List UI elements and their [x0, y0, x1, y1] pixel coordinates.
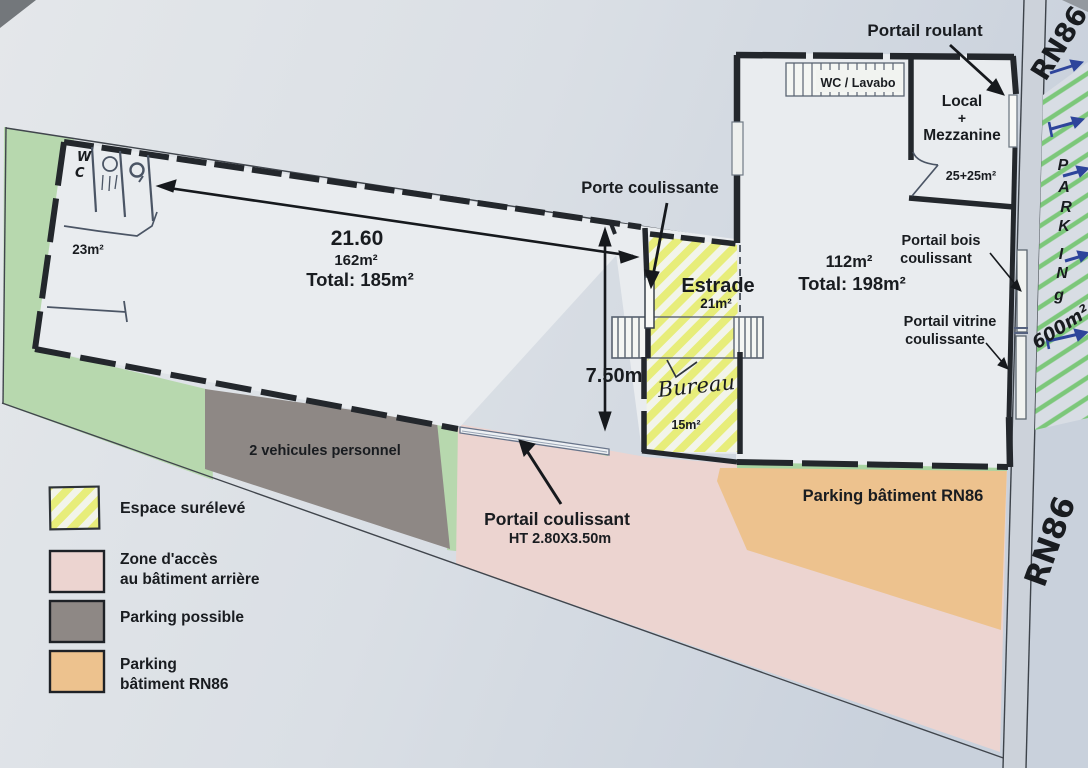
plus-label: +: [958, 110, 966, 126]
estrade-label: Estrade: [681, 275, 754, 297]
parking-letter-r: R: [1060, 199, 1072, 216]
portail-ht-label: HT 2.80X3.50m: [509, 531, 611, 547]
legend-swatch-gray: [50, 601, 104, 642]
parking-letter-k: K: [1058, 218, 1071, 235]
legend-swatch-orange: [50, 651, 104, 692]
legend-label-parking-possible: Parking possible: [120, 609, 244, 626]
portail-vitrine-panel: [1016, 336, 1026, 419]
area-162-label: 162m²: [334, 252, 377, 269]
portail-vitrine-label-1: Portail vitrine: [904, 314, 997, 330]
legend-swatch-pink: [50, 551, 104, 592]
west-wall-opening: [732, 122, 743, 175]
total-185-label: Total: 185m²: [306, 269, 414, 290]
area-112-label: 112m²: [826, 253, 873, 271]
parking-letter-g: g: [1053, 287, 1064, 304]
vehicules-label: 2 vehicules personnel: [249, 443, 401, 459]
wall-right-building-east-lower: [1009, 417, 1010, 467]
portail-coulissant-label: Portail coulissant: [484, 509, 630, 529]
portail-bois-panel: [1017, 250, 1027, 332]
building-right-floor: [736, 53, 1014, 468]
local-label: Local: [942, 93, 982, 110]
area-23-label: 23m²: [72, 242, 104, 257]
wall-right-building-north: [736, 55, 1014, 57]
portail-roulant-panel: [1009, 95, 1017, 147]
parking-letter-i: I: [1059, 246, 1064, 263]
area-15-label: 15m²: [671, 418, 700, 432]
area-21-label: 21m²: [700, 296, 732, 311]
dim-7-50-label: 7.50m: [586, 365, 643, 387]
parking-letter-n: N: [1056, 265, 1068, 282]
floor-plan-photo: 21.60 162m² Total: 185m² 23m² Porte coul…: [0, 0, 1088, 768]
portail-bois-label-1: Portail bois: [902, 233, 981, 249]
portail-vitrine-label-2: coulissante: [905, 332, 985, 348]
porte-coulissante-label: Porte coulissante: [581, 179, 719, 197]
area-25-25-label: 25+25m²: [946, 169, 996, 183]
parking-letter-a: A: [1057, 179, 1070, 196]
dim-21-60-label: 21.60: [331, 227, 384, 250]
legend-label-espace-sureleve: Espace surélevé: [120, 500, 246, 517]
legend-swatch-yellow-hatch: [50, 487, 100, 530]
parking-rn86-label: Parking bâtiment RN86: [803, 487, 984, 505]
portail-roulant-label: Portail roulant: [867, 21, 983, 40]
mezzanine-label: Mezzanine: [923, 127, 1001, 144]
legend-label-zone-acces-1: Zone d'accès: [120, 551, 218, 568]
total-198-label: Total: 198m²: [798, 273, 906, 294]
wall-right-building-east-upper: [1013, 56, 1016, 94]
legend-label-zone-acces-2: au bâtiment arrière: [120, 571, 260, 588]
legend-label-parking-rn86-1: Parking: [120, 656, 177, 673]
wc-letter-c: C: [75, 166, 85, 181]
wc-letter-w: W: [77, 150, 92, 165]
portail-bois-label-2: coulissant: [900, 251, 972, 267]
wc-lavabo-label: WC / Lavabo: [820, 76, 895, 90]
floor-plan-svg: 21.60 162m² Total: 185m² 23m² Porte coul…: [0, 0, 1088, 768]
legend-label-parking-rn86-2: bâtiment RN86: [120, 676, 229, 693]
parking-letter-p: P: [1058, 157, 1069, 174]
